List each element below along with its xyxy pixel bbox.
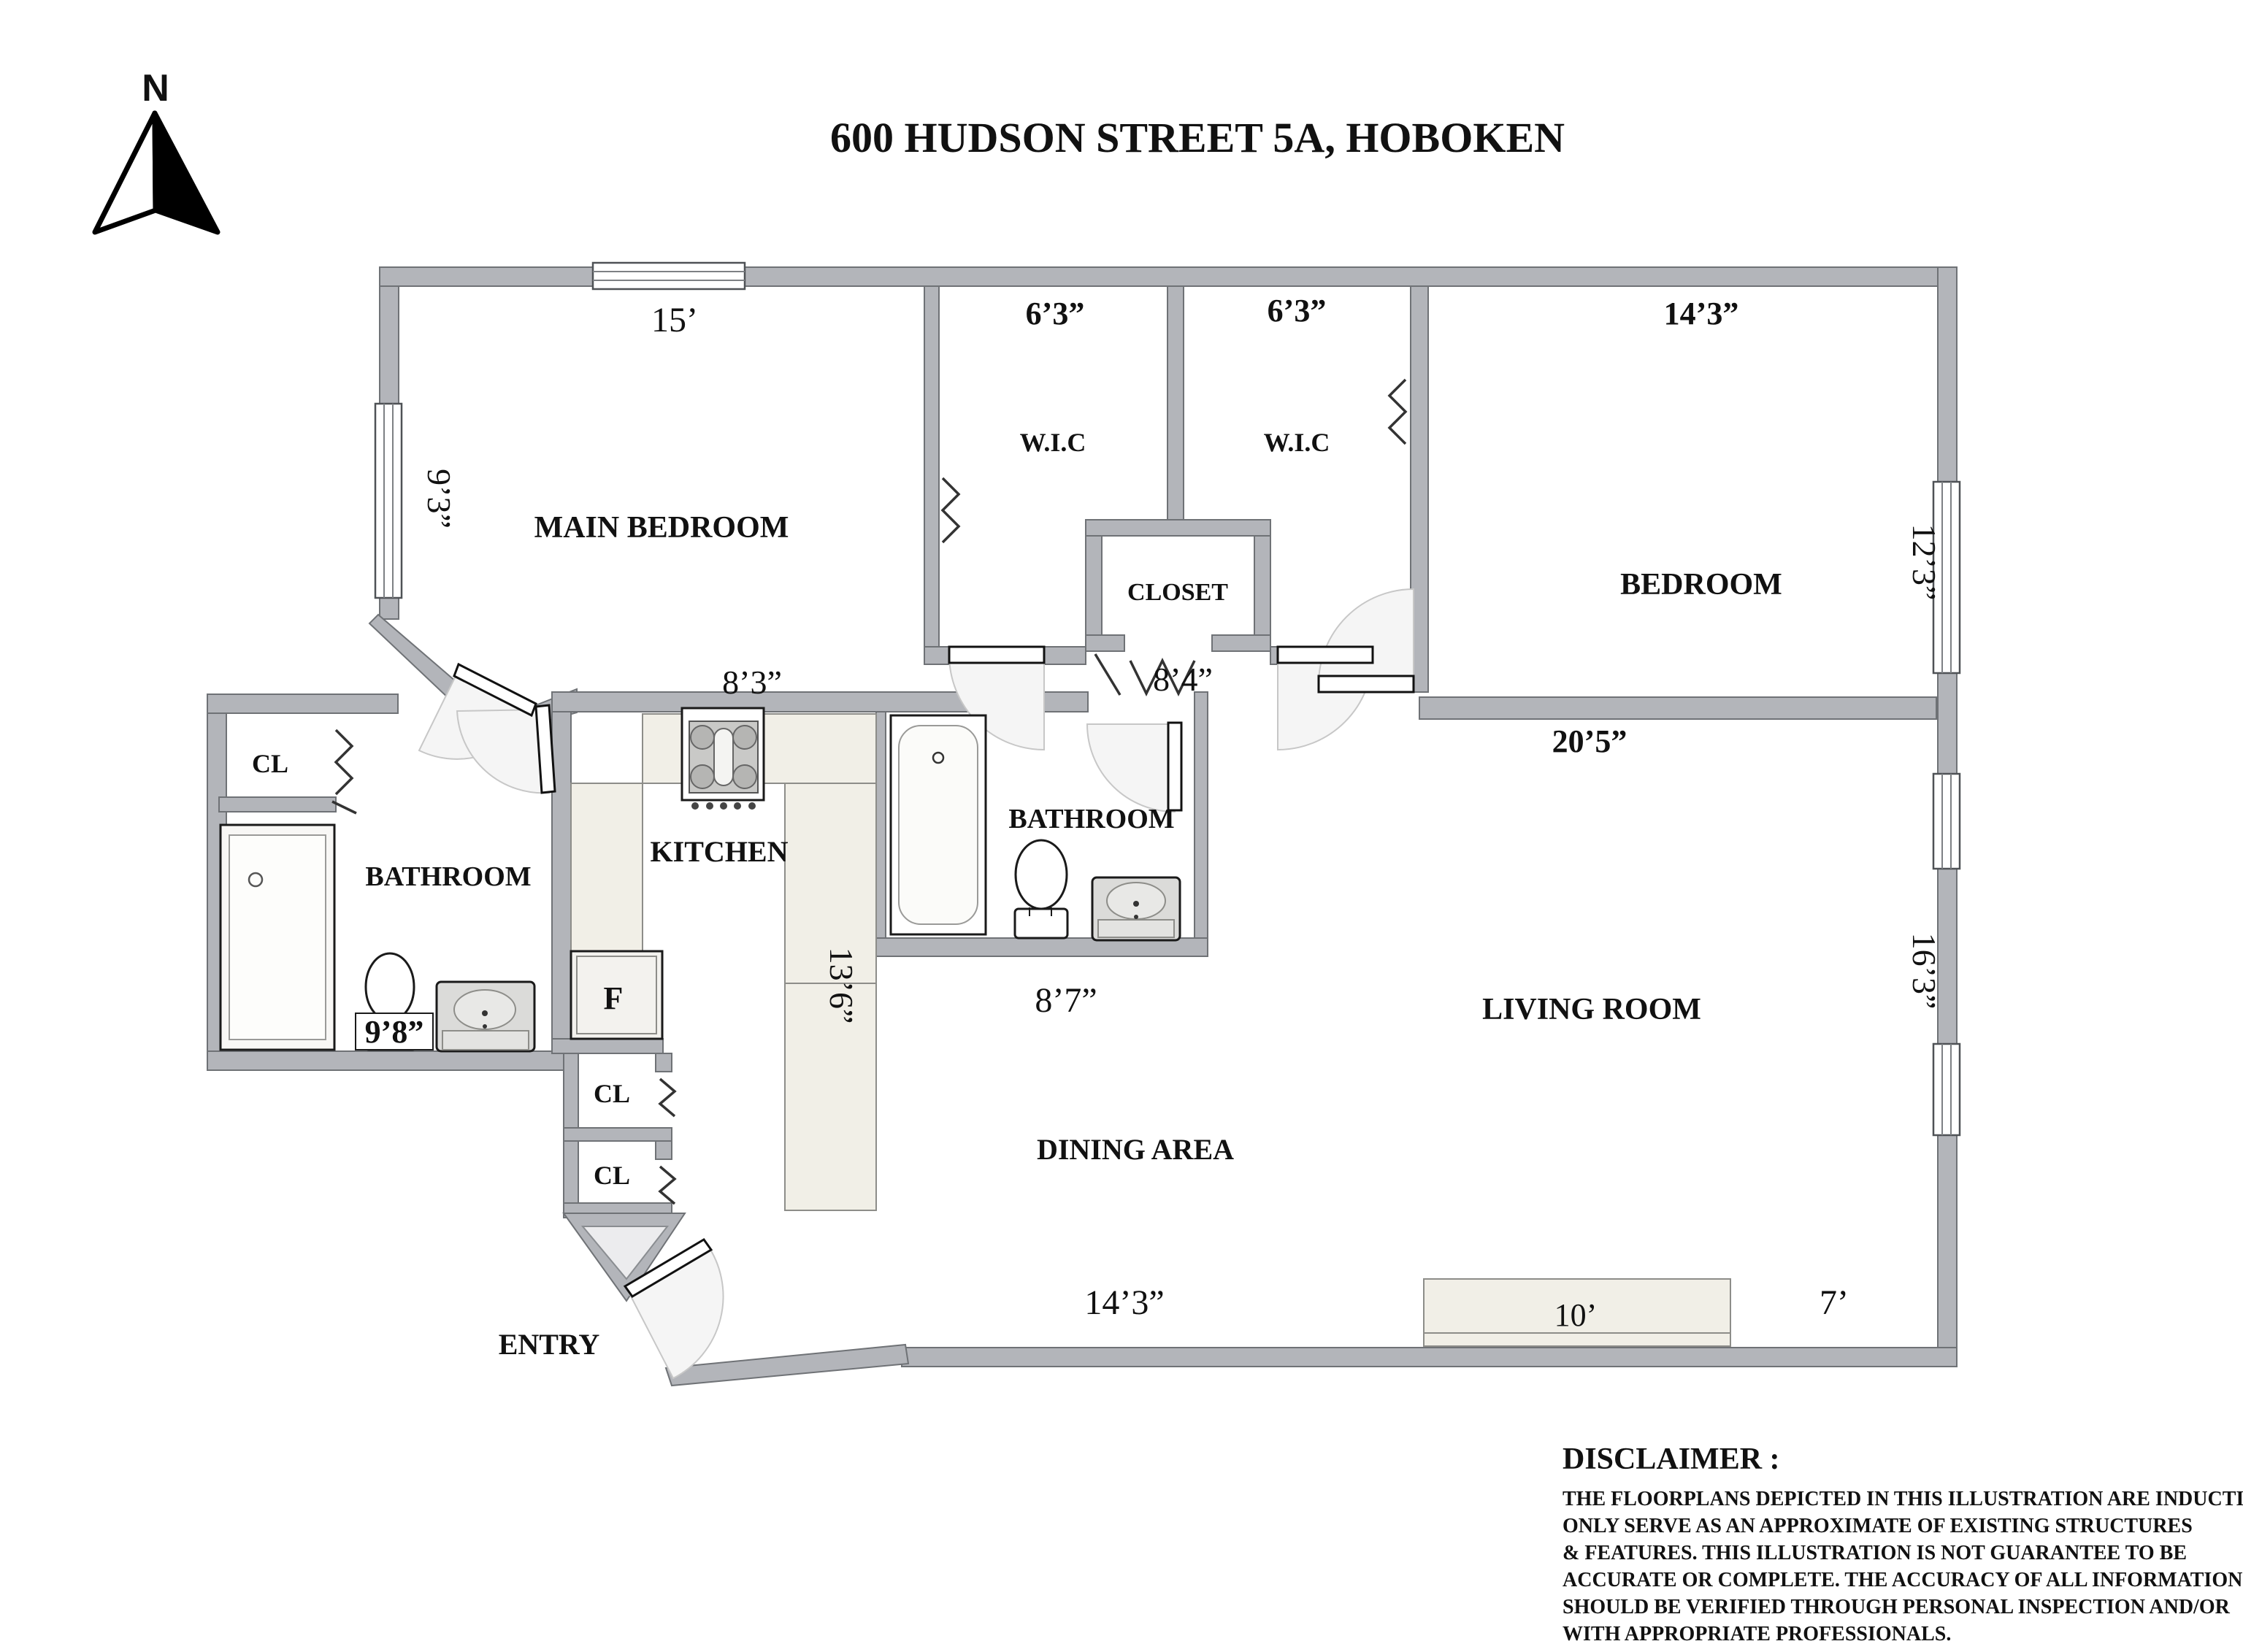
wall-bath2-right	[1195, 692, 1208, 956]
room-label-bathroom-left: BATHROOM	[365, 861, 531, 892]
shower	[221, 825, 334, 1050]
wall-cl1-stub	[656, 1053, 672, 1072]
dim-wic-left-w: 6’3”	[1026, 296, 1085, 331]
bifold-wic-right-icon	[1389, 380, 1406, 444]
dim-bedroom-w: 14’3”	[1664, 296, 1739, 331]
room-label-bedroom: BEDROOM	[1620, 568, 1782, 602]
window-main-bedroom-top	[593, 263, 745, 289]
room-label-wic-right: W.I.C	[1264, 428, 1330, 457]
dim-main-bedroom-h: 9’3”	[421, 469, 458, 529]
dim-living-bottom-r: 7’	[1820, 1283, 1849, 1322]
wall-bath1-bottom	[207, 1051, 566, 1070]
toilet-mid	[1015, 840, 1067, 938]
burner-icon	[691, 765, 714, 788]
wall-kitchen-right	[876, 712, 886, 938]
dim-bath-left-w: 9’8”	[365, 1014, 424, 1050]
disclaimer-line: & FEATURES. THIS ILLUSTRATION IS NOT GUA…	[1563, 1542, 2187, 1564]
dim-living-top-w: 20’5”	[1552, 723, 1627, 759]
disclaimer-line: THE FLOORPLANS DEPICTED IN THIS ILLUSTRA…	[1563, 1488, 2243, 1510]
door-leaf-bath2	[1168, 723, 1181, 810]
north-arrow-icon	[95, 113, 218, 232]
wall-closet-right	[1254, 520, 1270, 651]
disclaimer-line: ACCURATE OR COMPLETE. THE ACCURACY OF AL…	[1563, 1569, 2242, 1591]
door-arc-bedroom	[1319, 589, 1414, 684]
burner-icon	[691, 726, 714, 749]
faucet-icon	[1133, 901, 1139, 907]
door-arc-bath2	[1087, 724, 1175, 812]
door-leaf-wic-right	[1278, 647, 1373, 663]
door-leaf-bedroom	[1319, 676, 1414, 692]
dim-main-bedroom-w: 15’	[651, 301, 698, 339]
room-label-living-room: LIVING ROOM	[1482, 993, 1701, 1026]
dim-bedroom-h: 12’3”	[1906, 524, 1943, 601]
wall-diagonal-a	[369, 615, 461, 701]
fridge-label: F	[604, 980, 624, 1016]
wall-wic-left	[924, 286, 939, 664]
page-title: 600 HUDSON STREET 5A, HOBOKEN	[830, 114, 1565, 161]
dim-bath-mid-w: 8’7”	[1035, 981, 1097, 1020]
bathtub	[891, 715, 986, 934]
wall-wicrow-seg1	[924, 647, 949, 664]
dim-living-h: 16’3”	[1906, 933, 1943, 1010]
window-main-bedroom-left	[375, 404, 402, 598]
room-label-dining-area: DINING AREA	[1037, 1133, 1234, 1166]
wall-column-left	[552, 712, 571, 1051]
dim-hall-w: 8’4”	[1153, 661, 1213, 698]
bifold-wic-left-icon	[943, 478, 959, 542]
wall-wicrow-seg2	[1044, 647, 1086, 664]
wall-closet-stub-l	[1086, 635, 1124, 651]
room-label-cl-bath: CL	[252, 749, 288, 778]
faucet-icon	[482, 1010, 488, 1016]
sink-left	[437, 982, 534, 1051]
disclaimer-line: SHOULD BE VERIFIED THROUGH PERSONAL INSP…	[1563, 1596, 2231, 1618]
room-label-kitchen: KITCHEN	[651, 835, 789, 868]
burner-icon	[733, 765, 756, 788]
window-living-right-1	[1933, 774, 1960, 869]
disclaimer-line: WITH APPROPRIATE PROFESSIONALS.	[1563, 1623, 1951, 1645]
disclaimer-line: ONLY SERVE AS AN APPROXIMATE OF EXISTING…	[1563, 1515, 2193, 1537]
disclaimer-heading: DISCLAIMER :	[1563, 1442, 1780, 1476]
wall-cl2-stub	[656, 1141, 672, 1159]
wall-closet-left	[1086, 520, 1102, 651]
room-label-cl-1: CL	[594, 1079, 630, 1108]
dim-wic-right-w: 6’3”	[1268, 293, 1327, 329]
door-arc-bath1	[457, 710, 549, 793]
burner-icon	[733, 726, 756, 749]
bifold-cl1-icon	[660, 1079, 675, 1116]
wall-bedroom-bottom	[1419, 697, 1936, 719]
room-label-closet: CLOSET	[1127, 579, 1228, 606]
wall-bottom	[902, 1348, 1957, 1367]
dim-kitchen-h: 13’6”	[823, 948, 860, 1024]
floorplan-page: N 600 HUDSON STREET 5A, HOBOKEN MAIN BED…	[0, 0, 2243, 1652]
window-living-right-2	[1933, 1044, 1960, 1135]
bifold-cl2-icon	[660, 1167, 675, 1204]
bifold-bath-cl-icon	[336, 730, 352, 794]
room-label-main-bedroom: MAIN BEDROOM	[534, 511, 789, 545]
wall-under-fridge	[552, 1039, 663, 1053]
dim-console-w: 10’	[1554, 1297, 1598, 1333]
wall-bath1-top	[207, 694, 398, 713]
wall-wic-mid	[1167, 286, 1184, 520]
counter-kitchen-left	[571, 783, 643, 951]
room-label-bathroom-mid: BATHROOM	[1008, 804, 1174, 834]
dim-kitchen-w: 8’3”	[722, 664, 782, 701]
wall-closet-top	[1086, 520, 1270, 536]
closet-door-tick-icon	[1095, 654, 1120, 695]
room-label-wic-left: W.I.C	[1020, 428, 1086, 457]
door-leaf-wic-left	[949, 647, 1044, 663]
room-label-cl-2: CL	[594, 1161, 630, 1190]
wall-under-cl	[219, 797, 336, 812]
dim-dining-w: 14’3”	[1084, 1283, 1164, 1322]
north-label: N	[142, 67, 169, 110]
room-label-entry: ENTRY	[499, 1328, 600, 1361]
wall-cl-divider	[564, 1128, 672, 1141]
sink-mid	[1092, 877, 1180, 940]
stove	[682, 708, 764, 810]
wall-closet-stub-r	[1212, 635, 1270, 651]
